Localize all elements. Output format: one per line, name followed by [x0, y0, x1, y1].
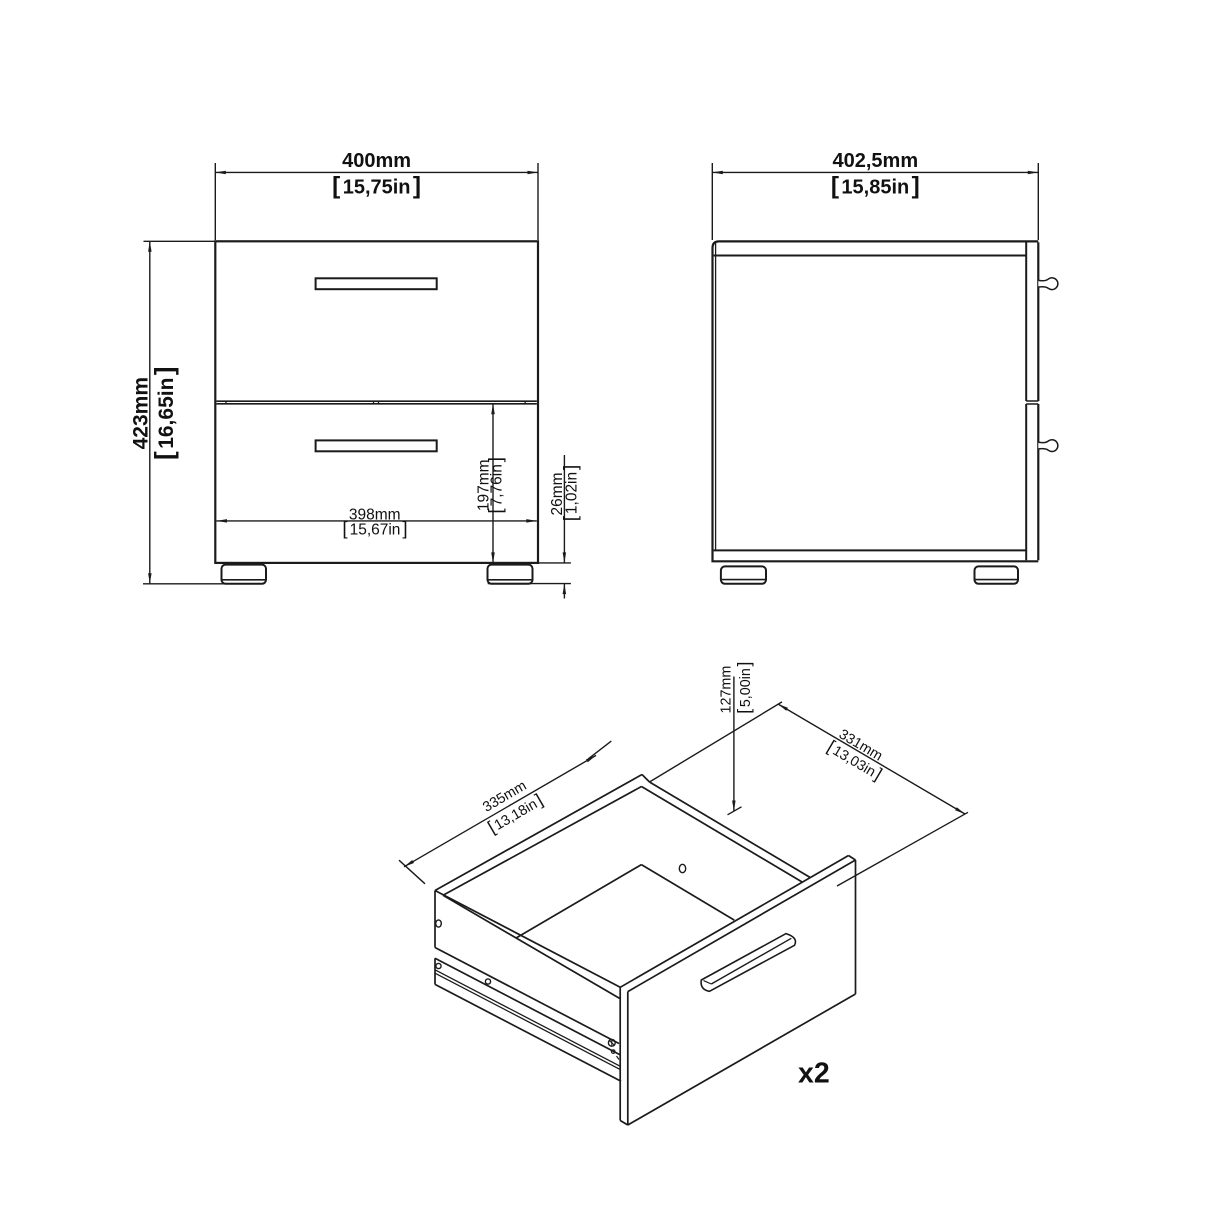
svg-text:402,5mm: 402,5mm	[832, 150, 918, 172]
svg-text:[16,65in]: [16,65in]	[151, 367, 179, 460]
svg-text:x2: x2	[798, 1058, 830, 1090]
svg-text:[15,67in]: [15,67in]	[342, 519, 407, 540]
svg-text:[15,85in]: [15,85in]	[831, 173, 920, 200]
svg-text:[7,76in]: [7,76in]	[486, 457, 507, 514]
svg-text:400mm: 400mm	[342, 150, 411, 172]
svg-text:127mm: 127mm	[719, 666, 735, 714]
svg-text:[1,02in]: [1,02in]	[560, 465, 581, 522]
svg-text:[15,75in]: [15,75in]	[332, 173, 421, 200]
svg-text:423mm: 423mm	[129, 377, 152, 449]
